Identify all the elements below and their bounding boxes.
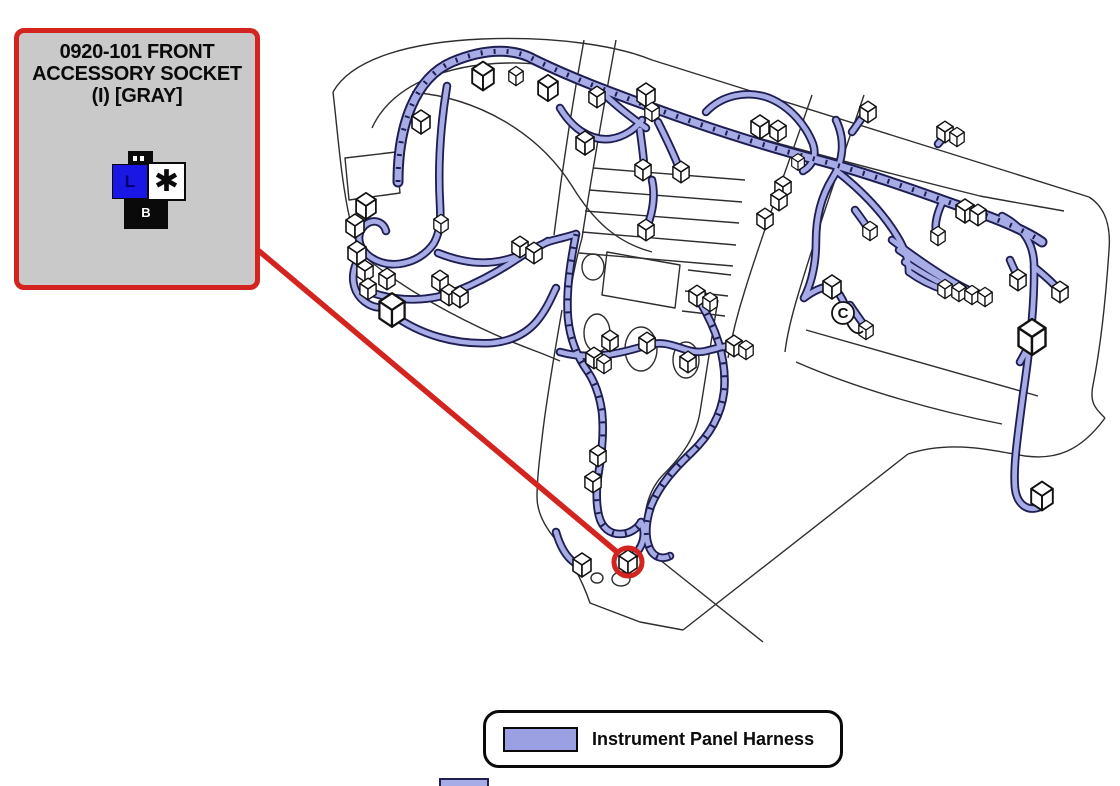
connector-icon	[452, 286, 468, 308]
diagram-line	[585, 211, 739, 223]
diagram-line	[796, 362, 1002, 424]
connector-icon	[379, 268, 395, 290]
connector-icon	[1019, 319, 1046, 355]
connector-icon	[860, 101, 876, 123]
diagram-line	[683, 454, 908, 630]
connector-icon	[1031, 482, 1053, 511]
connector-icon	[950, 127, 964, 146]
connector-icon	[965, 285, 979, 304]
diagram-line	[688, 270, 731, 275]
connector-icon	[360, 278, 376, 300]
connector-left-cavity-label: L	[125, 172, 135, 192]
connector-icon	[538, 75, 558, 101]
connector-left-cavity: L	[112, 164, 148, 199]
connector-icon	[635, 159, 651, 181]
connector-icon	[639, 332, 655, 354]
connector-icon	[823, 275, 841, 299]
connector-right-cavity: ✱	[147, 162, 186, 201]
connector-icon	[938, 279, 952, 298]
connector-icon	[509, 66, 523, 85]
connector-icon	[346, 214, 364, 238]
connector-icon	[859, 320, 873, 339]
connector-icon	[619, 550, 637, 574]
connector-icon	[590, 445, 606, 467]
diagram-line	[333, 92, 375, 265]
connector-icon	[970, 204, 986, 226]
diagram-line	[353, 86, 1059, 563]
connector-icon	[952, 282, 966, 301]
connector-icon	[356, 193, 376, 219]
connector-icon	[931, 226, 945, 245]
connector-right-cavity-label: ✱	[154, 167, 179, 197]
connector-icon	[526, 242, 542, 264]
diagram-line	[353, 86, 1059, 563]
connector-icon	[1010, 269, 1026, 291]
connector-tab-pins	[133, 156, 147, 161]
diagram-line	[589, 190, 742, 202]
diagram-line	[593, 168, 745, 180]
connector-icon	[638, 219, 654, 241]
connector-icon	[412, 110, 430, 134]
cutoff-swatch	[440, 779, 488, 786]
diagram-line	[908, 418, 1105, 457]
diagram-line	[345, 152, 400, 200]
diagram-line	[650, 552, 763, 642]
diagram-line	[806, 330, 1038, 396]
connector-icon	[703, 292, 717, 311]
legend-label: Instrument Panel Harness	[592, 729, 814, 750]
connector-icon	[472, 62, 494, 91]
connector-icon	[771, 189, 787, 211]
connector-icon	[673, 161, 689, 183]
diagram-line	[591, 573, 603, 583]
connector-icon	[1052, 281, 1068, 303]
callout-box: 0920-101 FRONT ACCESSORY SOCKET (I) [GRA…	[14, 28, 260, 290]
diagram-line	[582, 254, 604, 280]
connector-bottom-pin-label: B	[141, 205, 150, 220]
diagram-line	[1089, 197, 1109, 418]
connector-icon	[739, 340, 753, 359]
connector-icon	[770, 120, 786, 142]
connector-bottom-pin: B	[124, 198, 168, 229]
connector-icon	[597, 354, 611, 373]
connector-icon	[585, 471, 601, 493]
connector-icon	[576, 131, 594, 155]
connector-icon	[434, 214, 448, 233]
connector-icon	[978, 287, 992, 306]
connector-pinout-icon: B L ✱	[19, 33, 255, 285]
connector-icon	[589, 86, 605, 108]
connector-icon	[379, 293, 404, 327]
connector-icon	[863, 221, 877, 240]
connector-icon	[645, 102, 659, 121]
diagram-line	[582, 232, 736, 245]
connector-icon	[680, 351, 696, 373]
legend-box: Instrument Panel Harness	[483, 710, 843, 768]
c-symbol-letter: C	[838, 305, 849, 322]
connector-icon	[792, 154, 805, 171]
connector-icon	[573, 553, 591, 577]
harness-color-swatch	[503, 727, 578, 752]
connector-icon	[602, 330, 618, 352]
connector-icon	[751, 115, 769, 139]
page: C 0920-101 FRONT ACCESSORY SOCKET (I) [G…	[0, 0, 1120, 786]
connector-icon	[357, 260, 373, 282]
connector-icon	[757, 208, 773, 230]
